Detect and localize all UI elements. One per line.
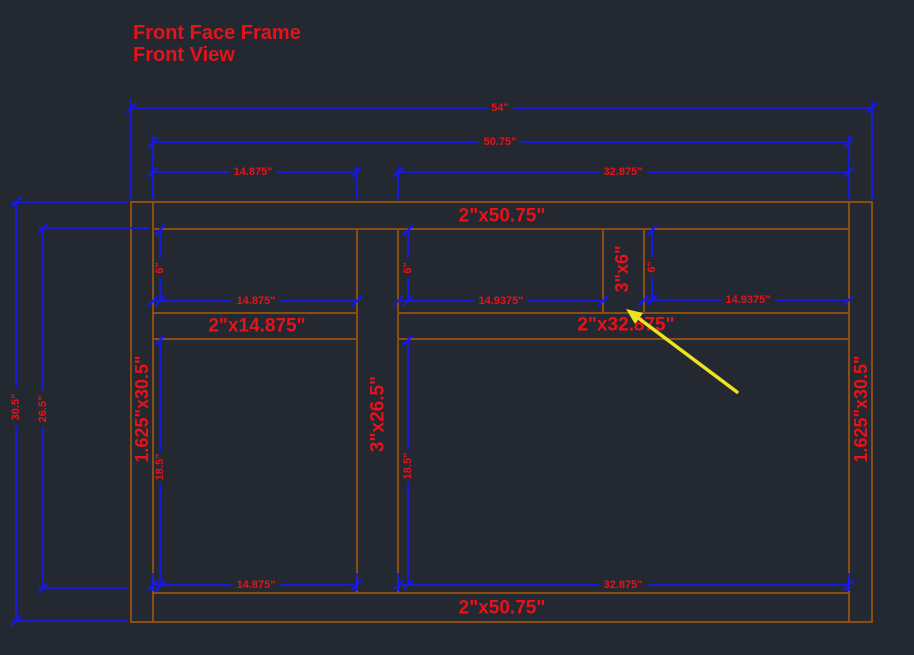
- leader-arrow[interactable]: [626, 309, 737, 392]
- center-stile-label[interactable]: 3"x26.5": [368, 376, 389, 452]
- right-stile-label[interactable]: 1.625"x30.5": [851, 355, 871, 462]
- dim-text: 18.5": [154, 454, 166, 481]
- dim-left-opening-mid[interactable]: 14.875": [148, 295, 362, 307]
- dim-right-drawer-left[interactable]: 14.9375": [393, 295, 608, 307]
- dim-drawer-height-left[interactable]: 6": [154, 225, 166, 306]
- frame-outline: [131, 202, 872, 622]
- dim-door-height-left[interactable]: 18.5": [154, 335, 166, 591]
- dim-overall-width[interactable]: 54": [126, 102, 877, 114]
- bottom-rail-label[interactable]: 2"x50.75": [459, 598, 546, 619]
- dim-left-opening-bottom[interactable]: 14.875": [148, 579, 362, 591]
- dim-text: 14.875": [234, 166, 273, 178]
- dim-text: 26.5": [37, 396, 49, 423]
- dim-drawer-height-right[interactable]: 6": [646, 225, 658, 305]
- dim-right-opening-bottom[interactable]: 32.875": [393, 579, 854, 591]
- cad-viewport[interactable]: Front Face Frame Front View: [0, 0, 914, 655]
- drawing-canvas[interactable]: Front Face Frame Front View: [0, 0, 914, 655]
- header-stile-label[interactable]: 3"x6": [612, 245, 632, 292]
- dim-text: 18.5": [402, 453, 414, 480]
- dim-text: 6": [402, 262, 414, 273]
- leader-arrow-shaft: [637, 317, 737, 392]
- dim-text: 14.875": [237, 579, 276, 591]
- dim-text: 32.875": [604, 579, 643, 591]
- dim-text: 14.9375": [479, 295, 524, 307]
- dim-right-drawer-right[interactable]: 14.9375": [639, 294, 854, 306]
- title-line-1: Front Face Frame: [133, 22, 301, 44]
- part-labels[interactable]: 2"x50.75" 2"x50.75" 2"x14.875" 2"x32.875…: [132, 206, 871, 619]
- title-line-2: Front View: [133, 44, 235, 66]
- drawing-title[interactable]: Front Face Frame Front View: [133, 22, 301, 66]
- dim-text: 6": [646, 261, 658, 272]
- dim-inner-width[interactable]: 50.75": [148, 136, 854, 148]
- dim-text: 14.875": [237, 295, 276, 307]
- dim-text: 30.5": [10, 394, 22, 421]
- dim-text: 32.875": [604, 166, 643, 178]
- dim-text: 54": [491, 102, 508, 114]
- dim-drawer-height-center[interactable]: 6": [402, 225, 414, 306]
- dim-overall-height[interactable]: 30.5": [10, 197, 22, 626]
- left-mid-rail-label[interactable]: 2"x14.875": [208, 316, 305, 337]
- top-rail-label[interactable]: 2"x50.75": [459, 206, 546, 227]
- dim-left-opening-top[interactable]: 14.875": [148, 166, 362, 178]
- dim-text: 14.9375": [726, 294, 771, 306]
- dim-right-opening-top[interactable]: 32.875": [393, 166, 854, 178]
- dim-door-height-right[interactable]: 18.5": [402, 335, 414, 590]
- dim-opening-height[interactable]: 26.5": [37, 223, 49, 593]
- dim-text: 50.75": [484, 136, 517, 148]
- face-frame-geometry[interactable]: [131, 202, 872, 622]
- left-stile-label[interactable]: 1.625"x30.5": [132, 355, 152, 462]
- dim-text: 6": [154, 262, 166, 273]
